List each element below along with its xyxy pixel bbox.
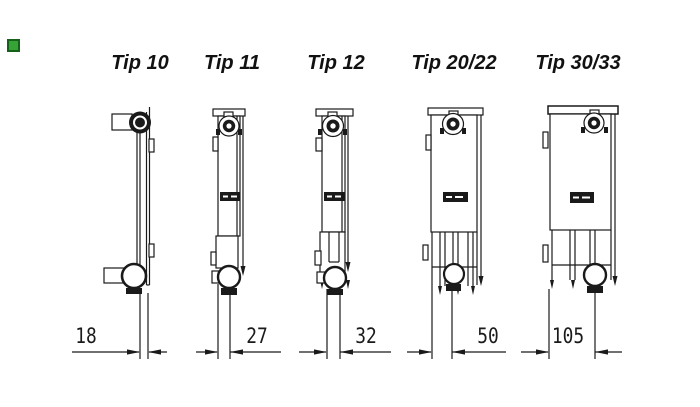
brand-badge xyxy=(220,192,240,201)
radiator-type-diagram: Tip 10 Tip 11 Tip 12 Tip 20/22 Tip 30/33… xyxy=(0,0,700,407)
wall-bracket-tab xyxy=(315,251,321,265)
bottom-valve-icon xyxy=(104,264,146,294)
dimension-tip-11 xyxy=(196,284,281,359)
brand-badge xyxy=(443,192,468,202)
radiator-profile-tip-30-33 xyxy=(543,106,618,293)
wall-bracket-tab xyxy=(149,139,154,152)
brand-badge xyxy=(324,192,345,201)
wall-bracket-tab xyxy=(316,138,322,151)
dimension-tip-20-22 xyxy=(407,285,506,359)
wall-bracket-tab xyxy=(213,137,218,151)
wall-bracket-tab xyxy=(543,245,548,262)
wall-bracket-tab xyxy=(211,252,216,265)
wall-bracket-tab xyxy=(543,132,548,148)
dimension-tip-10 xyxy=(72,293,167,359)
bottom-valve-icon xyxy=(212,266,240,295)
bottom-valve-icon xyxy=(584,264,606,293)
top-valve-icon xyxy=(129,112,151,134)
wall-bracket-tab xyxy=(423,245,428,260)
radiator-profile-tip-20-22 xyxy=(423,108,484,295)
radiator-profile-tip-10 xyxy=(104,107,154,294)
radiator-profile-tip-12 xyxy=(315,109,353,295)
radiator-profile-tip-11 xyxy=(211,109,246,295)
bottom-valve-icon xyxy=(444,264,464,291)
radiator-diagram-canvas xyxy=(0,0,700,407)
dimension-tip-30-33 xyxy=(521,289,622,359)
wall-bracket-tab xyxy=(426,135,431,150)
dimension-tip-12 xyxy=(299,289,391,359)
brand-badge xyxy=(570,192,594,203)
wall-bracket-tab xyxy=(149,244,154,257)
